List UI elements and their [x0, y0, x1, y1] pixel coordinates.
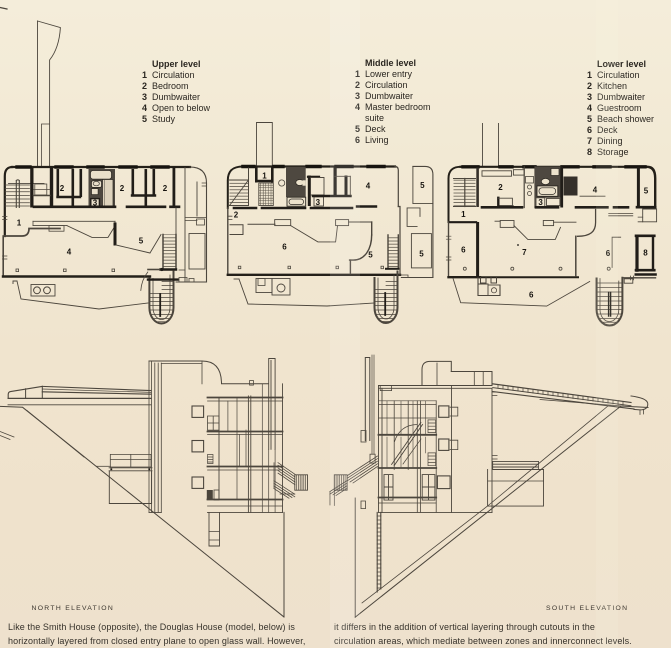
svg-text:2: 2 [163, 184, 168, 193]
svg-text:6: 6 [529, 291, 534, 300]
svg-text:2: 2 [60, 184, 65, 193]
svg-text:8: 8 [643, 249, 648, 258]
svg-text:5: 5 [420, 181, 425, 190]
svg-text:6: 6 [461, 246, 466, 255]
svg-text:2: 2 [234, 211, 239, 220]
svg-text:2: 2 [120, 184, 125, 193]
svg-text:1: 1 [17, 219, 22, 228]
svg-text:1: 1 [262, 172, 267, 181]
svg-text:5: 5 [368, 250, 373, 259]
svg-text:5: 5 [419, 249, 424, 258]
svg-text:5: 5 [139, 237, 144, 246]
svg-text:2: 2 [498, 183, 503, 192]
svg-text:3: 3 [538, 198, 543, 207]
svg-text:4: 4 [366, 182, 371, 191]
svg-text:3: 3 [316, 198, 321, 207]
svg-text:1: 1 [461, 210, 466, 219]
svg-text:5: 5 [644, 187, 649, 196]
svg-text:7: 7 [522, 248, 527, 257]
svg-text:4: 4 [67, 248, 72, 257]
svg-text:6: 6 [282, 243, 287, 252]
